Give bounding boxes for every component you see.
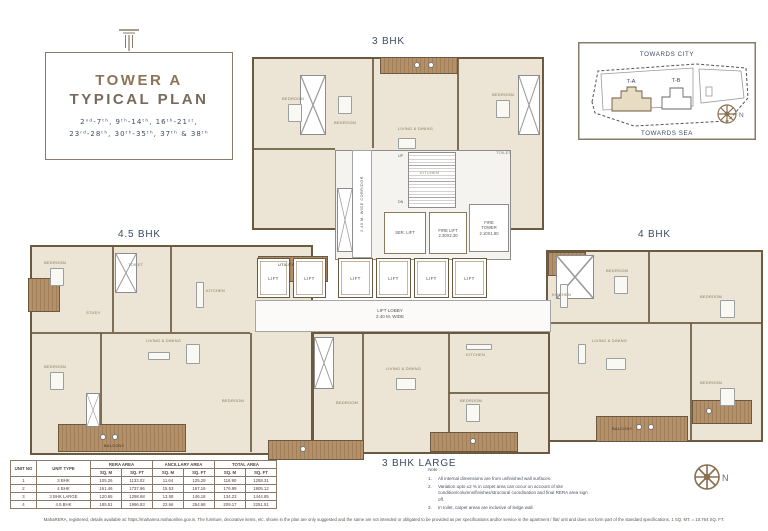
tower-title-line1: TOWER A [95,72,183,89]
tower-a-label: T-A [626,79,635,85]
lift-shaft: LIFT [293,258,326,298]
service-lift: SER. LIFT [384,212,426,254]
lift-label: LIFT [426,276,436,281]
cell-rera-sqft: 1298.68 [122,493,153,501]
interior-wall [362,334,364,452]
kitchen-counter-icon [196,282,204,308]
col-header-unit-type: UNIT TYPE [37,461,91,477]
col-header-sqft: SQ. FT [122,469,153,477]
col-header-unit-no: UNIT NO [11,461,37,477]
room-label-bedroom: BEDROOM [700,294,722,299]
room-label-bedroom: BEDROOM [492,92,514,97]
cell-tot-sqft: 1905.12 [246,485,277,493]
title-box: TOWER A TYPICAL PLAN 2ⁿᵈ-7ᵗʰ, 9ᵗʰ-14ᵗʰ, … [45,52,233,160]
dining-table-icon [398,138,416,149]
col-header-rera: RERA AREA [91,461,153,469]
room-label-bedroom: BEDROOM [334,120,356,125]
dining-table-icon [396,378,416,390]
interior-wall [32,332,250,334]
column-ornament-icon [116,27,142,53]
room-label-living-dining: LIVING & DINING [592,338,627,343]
lift-lobby-label: LIFT LOBBY 2.40 M. WIDE [350,308,430,321]
notes-heading: Note :- [428,467,654,474]
bed-icon [496,100,510,118]
corridor-label: 2.40 M. WIDE CORRIDOR [360,176,364,232]
planter-icon [300,446,306,452]
note-number: 1. [428,476,438,483]
bed-icon [614,276,628,294]
room-label-toilet: TOILET [496,150,511,155]
table-row: 1 3 BHK 105.26 1133.02 11.64 125.29 116.… [11,477,277,485]
cell-rera-sqm: 105.26 [91,477,122,485]
room-label-living-dining: LIVING & DINING [398,126,433,131]
note-number: 2. [428,484,438,504]
lift-shaft: LIFT [376,258,411,298]
room-label-bedroom: BEDROOM [460,398,482,403]
up-label: UP [398,154,403,158]
table-row: 3 3 BHK LARGE 120.65 1298.68 13.58 146.1… [11,493,277,501]
unit-label-3bhk: 3 BHK [372,36,405,47]
cell-tot-sqm: 176.99 [215,485,246,493]
room-label-kitchen: KITCHEN [420,170,439,175]
floor-range: 2ⁿᵈ-7ᵗʰ, 9ᵗʰ-14ᵗʰ, 16ᵗʰ-21ˢᵗ, 23ʳᵈ-28ᵗʰ,… [69,117,208,141]
cell-rera-sqm: 161.46 [91,485,122,493]
dining-table-icon [606,358,626,370]
col-header-sqm: SQ. M [91,469,122,477]
cell-tot-sqft: 1444.85 [246,493,277,501]
bed-icon [288,104,302,122]
balcony-deck [268,440,364,460]
planter-icon [112,434,118,440]
cell-unit-type: 3 BHK LARGE [37,493,91,501]
cell-tot-sqft: 1258.31 [246,477,277,485]
room-label-bedroom: BEDROOM [44,260,66,265]
cell-unit-no: 1 [11,477,37,485]
cell-unit-type: 4.5 BHK [37,501,91,509]
cell-anc-sqft: 167.16 [184,485,215,493]
col-header-sqft: SQ. FT [246,469,277,477]
interior-wall [548,322,761,324]
area-table: UNIT NO UNIT TYPE RERA AREA ANCILLARY AR… [10,460,277,509]
compass-icon: N [692,461,740,493]
balcony-deck [596,416,688,442]
interior-wall [112,246,114,332]
fire-lift: FIRE LIFT 2.30X2.30 [429,212,467,254]
room-label-balcony: BALCONY [612,426,633,431]
cell-anc-sqm: 11.64 [153,477,184,485]
room-label-living-dining: LIVING & DINING [146,338,181,343]
lift-label: LIFT [304,276,314,281]
room-label-bedroom: BEDROOM [700,380,722,385]
cell-rera-sqft: 1996.83 [122,501,153,509]
note-text: Variation upto ±2 % in carpet area can o… [438,484,588,504]
lift-label: LIFT [350,276,360,281]
unit-label-4bhk: 4 BHK [638,229,671,240]
sofa-icon [578,344,586,364]
note-item: 1. All internal dimensions are from unfi… [428,476,654,483]
cell-rera-sqft: 1133.02 [122,477,153,485]
cell-unit-no: 2 [11,485,37,493]
bed-icon [720,388,735,406]
note-item: 3. In toilet, carpet areas are inclusive… [428,505,654,512]
table-row: 4 4.5 BHK 185.51 1996.83 23.66 254.68 20… [11,501,277,509]
stairwell [314,337,334,389]
kitchen-counter-icon [466,344,492,350]
table-row: 2 4 BHK 161.46 1737.96 15.53 167.16 176.… [11,485,277,493]
disclaimer: MahaRERA, registered, details available … [0,517,768,522]
stairwell [337,188,353,252]
room-label-bedroom: BEDROOM [606,268,628,273]
staircase [408,152,456,208]
interior-wall [252,148,335,150]
col-header-sqm: SQ. M [215,469,246,477]
planter-icon [636,424,642,430]
lift-label: LIFT [388,276,398,281]
lift-shaft: LIFT [414,258,449,298]
towards-sea-label: TOWARDS SEA [641,130,693,137]
fire-tower-size: 2.10X1.80 [479,231,498,236]
note-item: 2. Variation upto ±2 % in carpet area ca… [428,484,654,504]
lift-label: LIFT [268,276,278,281]
lift-shaft: LIFT [452,258,487,298]
note-number: 3. [428,505,438,512]
interior-wall [372,59,374,148]
towards-city-label: TOWARDS CITY [640,51,694,58]
interior-wall [170,246,172,332]
room-label-bedroom: BEDROOM [222,398,244,403]
interior-wall [449,392,548,394]
lift-label: LIFT [464,276,474,281]
stairwell [115,253,137,293]
sofa-icon [148,352,170,360]
col-header-sqft: SQ. FT [184,469,215,477]
bed-icon [50,268,64,286]
bed-icon [720,300,735,318]
cell-tot-sqm: 134.23 [215,493,246,501]
stairwell [518,75,540,135]
col-header-total: TOTAL AREA [215,461,277,469]
room-label-toilet: TOILET [128,262,143,267]
corridor: 2.40 M. WIDE CORRIDOR [352,150,372,258]
site-map-north-label: N [739,112,744,119]
cell-rera-sqft: 1737.96 [122,485,153,493]
cell-anc-sqm: 15.53 [153,485,184,493]
floor-plan-page: TOWER A TYPICAL PLAN 2ⁿᵈ-7ᵗʰ, 9ᵗʰ-14ᵗʰ, … [0,0,768,531]
room-label-kitchen: KITCHEN [552,292,571,297]
cell-tot-sqm: 209.17 [215,501,246,509]
planter-icon [648,424,654,430]
north-label: N [722,473,729,483]
bed-icon [466,404,480,422]
cell-unit-type: 3 BHK [37,477,91,485]
room-label-kitchen: KITCHEN [466,352,485,357]
dining-table-icon [186,344,200,364]
cell-anc-sqft: 146.18 [184,493,215,501]
room-label-bedroom: BEDROOM [336,400,358,405]
lift-lobby-line2: 2.40 M. WIDE [350,314,430,320]
bed-icon [338,96,352,114]
planter-icon [470,438,476,444]
site-location-map: TOWARDS CITY T-A T-B TOWARDS SEA N [578,42,756,140]
cell-tot-sqft: 2251.51 [246,501,277,509]
cell-anc-sqm: 23.66 [153,501,184,509]
room-label-bedroom: BEDROOM [282,96,304,101]
dn-label: DN [398,200,403,204]
col-header-ancillary: ANCILLARY AREA [153,461,215,469]
cell-tot-sqm: 116.90 [215,477,246,485]
stairwell [86,393,100,427]
interior-wall [250,333,252,452]
cell-anc-sqft: 254.68 [184,501,215,509]
room-label-kitchen: KITCHEN [206,288,225,293]
floor-range-line1: 2ⁿᵈ-7ᵗʰ, 9ᵗʰ-14ᵗʰ, 16ᵗʰ-21ˢᵗ, [69,117,208,129]
cell-rera-sqm: 120.65 [91,493,122,501]
lift-shaft: LIFT [338,258,373,298]
fire-tower: FIRE TOWER 2.10X1.80 [469,204,509,252]
tower-b-label: T-B [671,78,680,84]
interior-wall [648,252,650,322]
unit-label-4-5bhk: 4.5 BHK [118,229,161,240]
note-text: All internal dimensions are from unfinis… [438,476,654,483]
planter-icon [414,62,420,68]
cell-rera-sqm: 185.51 [91,501,122,509]
cell-unit-no: 4 [11,501,37,509]
room-label-bedroom: BEDROOM [44,364,66,369]
bed-icon [50,372,64,390]
cell-unit-type: 4 BHK [37,485,91,493]
col-header-sqm: SQ. M [153,469,184,477]
planter-icon [428,62,434,68]
room-label-balcony: BALCONY [104,443,125,448]
note-text: In toilet, carpet areas are inclusive of… [438,505,654,512]
planter-icon [706,408,712,414]
cell-anc-sqm: 13.58 [153,493,184,501]
service-lift-label: SER. LIFT [395,230,415,235]
tower-title-line2: TYPICAL PLAN [70,91,209,108]
stairwell [300,75,326,135]
floor-range-line2: 23ʳᵈ-28ᵗʰ, 30ᵗʰ-35ᵗʰ, 37ᵗʰ & 38ᵗʰ [69,129,208,141]
fire-lift-size: 2.30X2.30 [438,233,457,238]
notes: Note :- 1. All internal dimensions are f… [428,467,654,513]
planter-icon [100,434,106,440]
room-label-study: STUDY [86,310,101,315]
room-label-living-dining: LIVING & DINING [386,366,421,371]
cell-anc-sqft: 125.29 [184,477,215,485]
room-label-utility: UTILITY [278,262,294,267]
cell-unit-no: 3 [11,493,37,501]
